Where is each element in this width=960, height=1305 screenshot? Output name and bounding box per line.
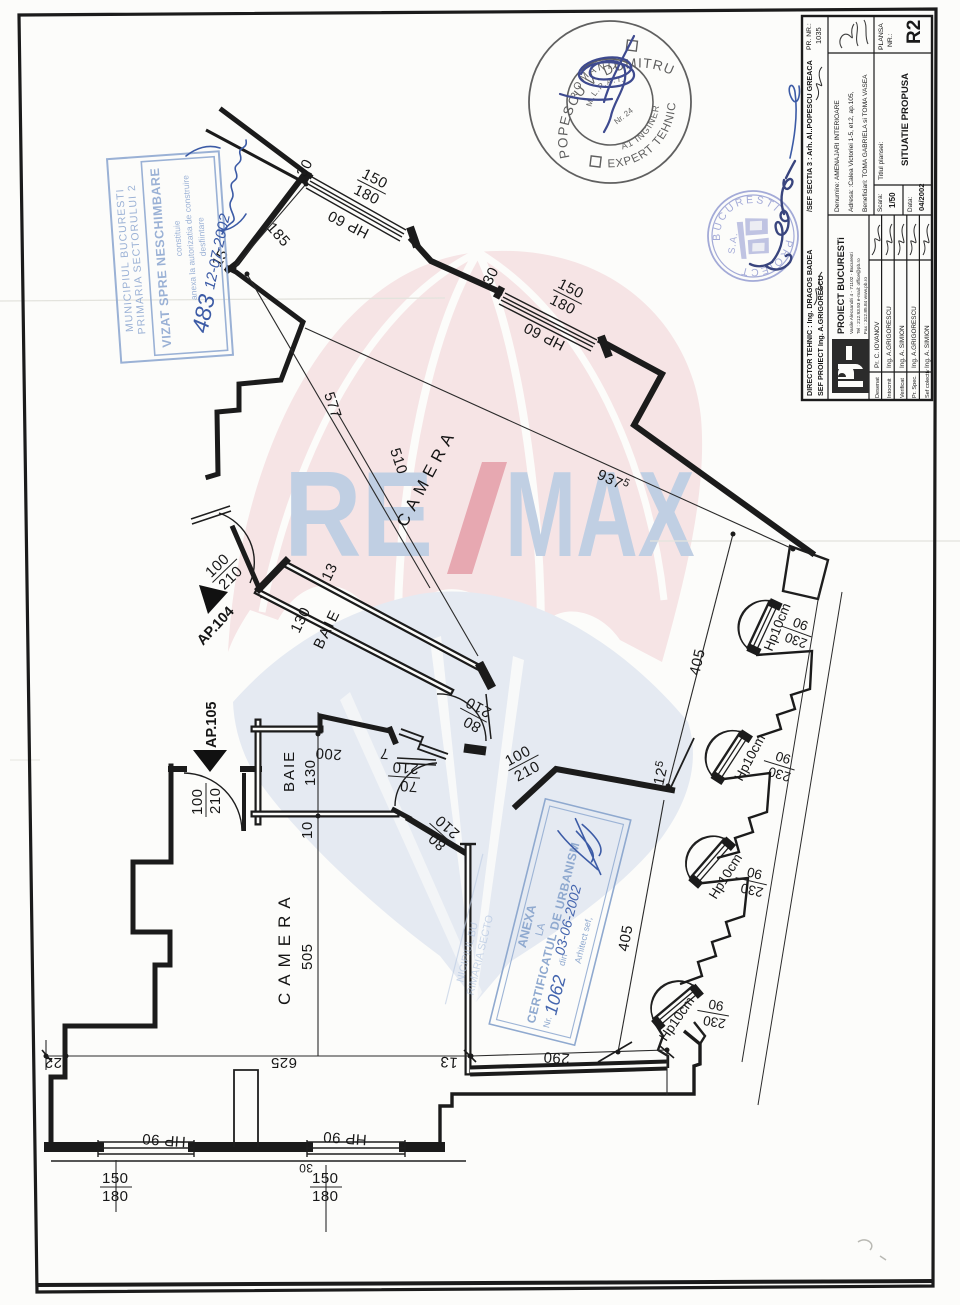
svg-text:PLANSA: PLANSA xyxy=(878,23,885,50)
svg-text:desfiintare: desfiintare xyxy=(195,217,208,257)
svg-text:Ing. A. SIMION: Ing. A. SIMION xyxy=(899,325,906,368)
svg-text:HP 90: HP 90 xyxy=(141,1130,186,1150)
svg-text:180: 180 xyxy=(312,1188,339,1205)
svg-text:CAMERA: CAMERA xyxy=(275,890,294,1005)
svg-text:Adresa: :Calea Victoriei 1-: Adresa: :Calea Victoriei 1-5, et.2, ap.1… xyxy=(848,91,855,212)
svg-text:1/50: 1/50 xyxy=(888,192,897,208)
svg-text:Nr. 24: Nr. 24 xyxy=(612,106,635,127)
svg-text:70: 70 xyxy=(399,777,418,795)
svg-text:Data:: Data: xyxy=(907,197,914,212)
svg-text:Scara:: Scara: xyxy=(877,193,884,212)
svg-text:Ing. A.GRIGORESCU: Ing. A.GRIGORESCU xyxy=(911,306,918,368)
svg-text:22: 22 xyxy=(44,1054,62,1071)
svg-text:30: 30 xyxy=(293,156,316,179)
svg-text:PROIECT BUCURESTi: PROIECT BUCURESTi xyxy=(836,237,846,334)
svg-text:505: 505 xyxy=(299,943,316,970)
svg-text:90: 90 xyxy=(746,864,764,882)
svg-text:405: 405 xyxy=(686,647,709,677)
svg-text:Denumire: AMENAJARI INTERIOA: Denumire: AMENAJARI INTERIOARE xyxy=(834,100,841,212)
svg-text:210: 210 xyxy=(207,787,224,814)
svg-text:7: 7 xyxy=(379,744,389,762)
svg-text:R2: R2 xyxy=(904,20,925,44)
svg-text:PR. NR.:: PR. NR.: xyxy=(806,23,813,50)
svg-text:Fax : 312.85.84 www.pb.ro: Fax : 312.85.84 www.pb.ro xyxy=(863,277,869,334)
svg-text:Verificat: Verificat xyxy=(900,378,906,398)
svg-text:Titlul plansei:: Titlul plansei: xyxy=(878,142,885,180)
svg-text:290: 290 xyxy=(543,1048,571,1067)
svg-text:230: 230 xyxy=(702,1013,727,1032)
svg-text:180: 180 xyxy=(102,1188,129,1205)
svg-text:Ing. A.GRIGORESCU: Ing. A.GRIGORESCU xyxy=(886,306,893,368)
svg-text:625: 625 xyxy=(270,1054,297,1071)
svg-text:130: 130 xyxy=(302,759,319,786)
svg-text:EXPERT TEHNIC: EXPERT TEHNIC xyxy=(596,96,694,183)
svg-text:Sef colectiv: Sef colectiv xyxy=(925,369,931,398)
svg-text:150: 150 xyxy=(102,1170,129,1187)
svg-text:Pr. Spec.: Pr. Spec. xyxy=(912,375,918,398)
svg-text:SITUATIE PROPUSA: SITUATIE PROPUSA xyxy=(900,73,911,166)
svg-text:HP 90: HP 90 xyxy=(322,1128,367,1148)
svg-text:150: 150 xyxy=(312,1170,339,1187)
svg-text:30: 30 xyxy=(299,1161,313,1175)
svg-text:S.A.: S.A. xyxy=(726,231,740,254)
svg-text:Intocmit: Intocmit xyxy=(887,378,893,398)
svg-text:/SEF SECTIA 3 : Arh. Al..PO: /SEF SECTIA 3 : Arh. Al..POPESCU GREACA xyxy=(805,60,814,212)
svg-text:Desenat: Desenat xyxy=(875,377,881,398)
svg-text:13: 13 xyxy=(439,1053,458,1071)
svg-text:90: 90 xyxy=(707,996,724,1013)
svg-text:Beneficiari: TOMA GABRIELA: Beneficiari: TOMA GABRIELA si TOMA VASEA xyxy=(862,74,869,212)
svg-text:NR.:: NR.: xyxy=(887,33,894,47)
svg-text:Nr.: Nr. xyxy=(541,1015,553,1029)
svg-text:1035: 1035 xyxy=(814,27,823,44)
svg-text:210: 210 xyxy=(392,758,420,777)
svg-text:100: 100 xyxy=(189,788,206,815)
svg-text:Ing. A. SIMION: Ing. A. SIMION xyxy=(924,325,931,368)
svg-text:SEF PROIECT Ing. A.GR: SEF PROIECT Ing. A.GRIGORESCU xyxy=(816,275,825,396)
svg-text:AP.105: AP.105 xyxy=(204,702,220,749)
svg-text:405: 405 xyxy=(615,924,636,953)
svg-text:BAIE: BAIE xyxy=(281,750,298,792)
svg-text:Pr. C. IOVANOV: Pr. C. IOVANOV xyxy=(874,321,881,368)
svg-text:constituie: constituie xyxy=(171,220,183,257)
svg-text:Tel : 212.93.93 e-mail: o: Tel : 212.93.93 e-mail: office@pb.ro xyxy=(856,258,862,334)
svg-text:Hp10cm: Hp10cm xyxy=(706,851,745,902)
svg-text:04/2002: 04/2002 xyxy=(917,184,926,211)
svg-text:10: 10 xyxy=(299,821,316,839)
svg-text:90: 90 xyxy=(774,748,793,767)
svg-text:Vasile Alecsandri 4 - 71102 -: Vasile Alecsandri 4 - 71102 - Bucuresti xyxy=(849,252,855,334)
svg-text:DIRECTOR TEHNIC : Ing. DRAGO: DIRECTOR TEHNIC : Ing. DRAGOS BADEA xyxy=(805,250,814,396)
